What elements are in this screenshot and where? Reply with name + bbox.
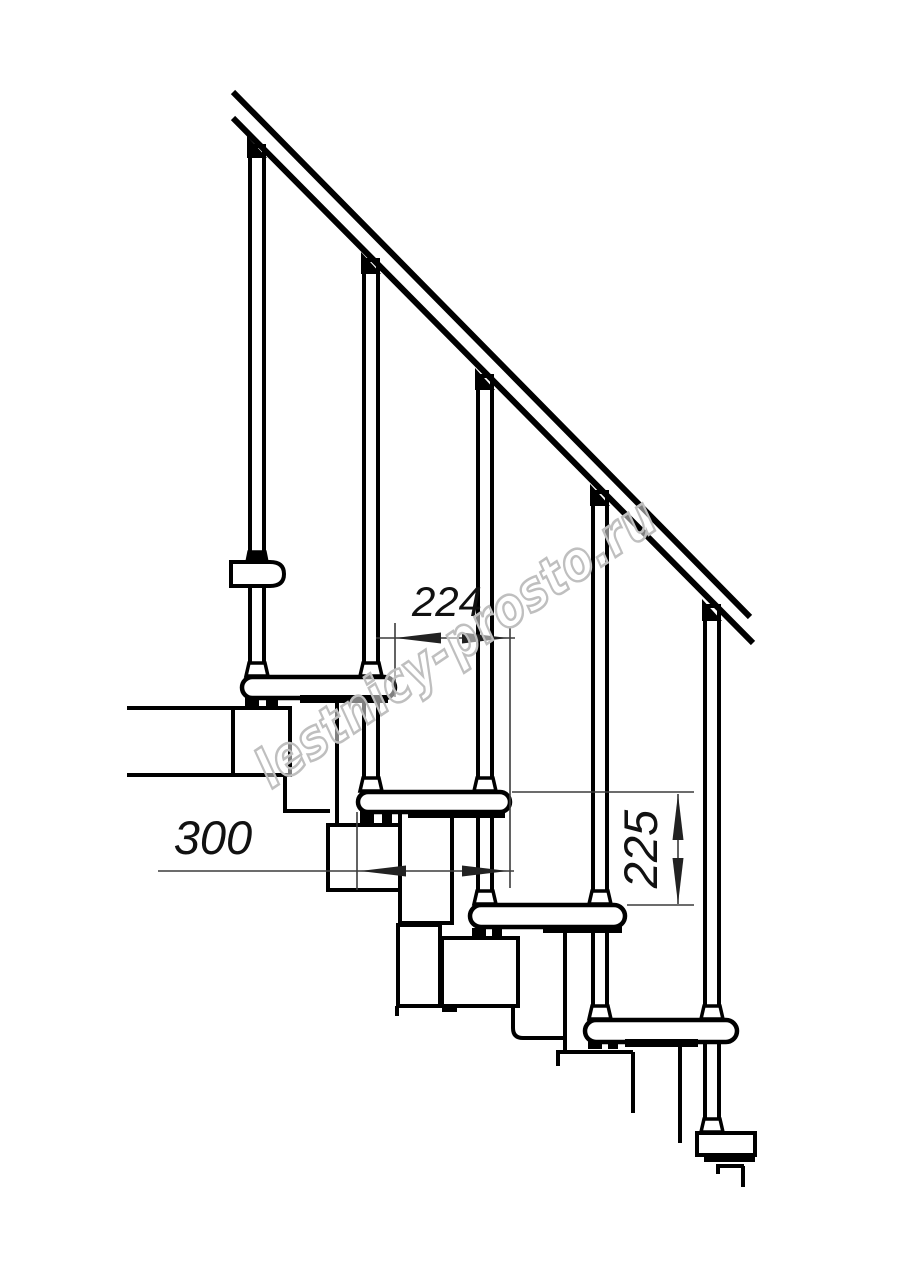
stringer-modules: [127, 699, 744, 1187]
tread-foot: [382, 811, 392, 823]
tread-shadow: [625, 1039, 698, 1047]
tread-foot: [266, 697, 278, 706]
tread-shadow: [408, 810, 505, 818]
dim-label-225: 225: [614, 809, 667, 889]
tread-foot: [245, 697, 259, 706]
baluster-collar: [247, 552, 267, 562]
tread-3: [470, 905, 625, 927]
tread-foot: [492, 928, 502, 937]
platform-end-bracket: [231, 562, 284, 586]
baluster-collar: [589, 891, 611, 904]
baluster-foot: [474, 891, 496, 904]
module-hanger-2b: [398, 925, 440, 1006]
tread-shadow: [704, 1154, 755, 1162]
module-block-3: [442, 938, 518, 1006]
tread-shadow: [543, 925, 622, 933]
tread-foot: [472, 928, 486, 937]
tread-foot: [360, 811, 374, 823]
tread-foot: [608, 1041, 618, 1049]
baluster-foot: [589, 1006, 611, 1019]
dim-label-300: 300: [174, 811, 252, 864]
arrow-down-icon: [673, 858, 684, 904]
baluster-foot: [360, 778, 382, 791]
module-connector-line: [513, 1006, 565, 1038]
tread-4: [585, 1020, 737, 1042]
baluster-1: [250, 146, 264, 671]
baluster-5: [705, 606, 719, 1128]
baluster-foot: [701, 1119, 723, 1132]
module-hanger-2: [400, 812, 452, 923]
tread-2: [358, 792, 510, 812]
baluster-collar: [701, 1006, 723, 1019]
tread-5: [697, 1133, 755, 1155]
staircase-drawing: 224 300 225 lestnicy-prosto.ru: [0, 0, 914, 1280]
arrow-up-icon: [673, 794, 684, 840]
baluster-collar: [474, 778, 496, 791]
tread-foot: [588, 1041, 602, 1049]
drawing-canvas: 224 300 225 lestnicy-prosto.ru: [0, 0, 914, 1280]
module-notch: [442, 1004, 457, 1012]
module-block-2: [328, 825, 403, 890]
baluster-foot: [246, 663, 268, 676]
